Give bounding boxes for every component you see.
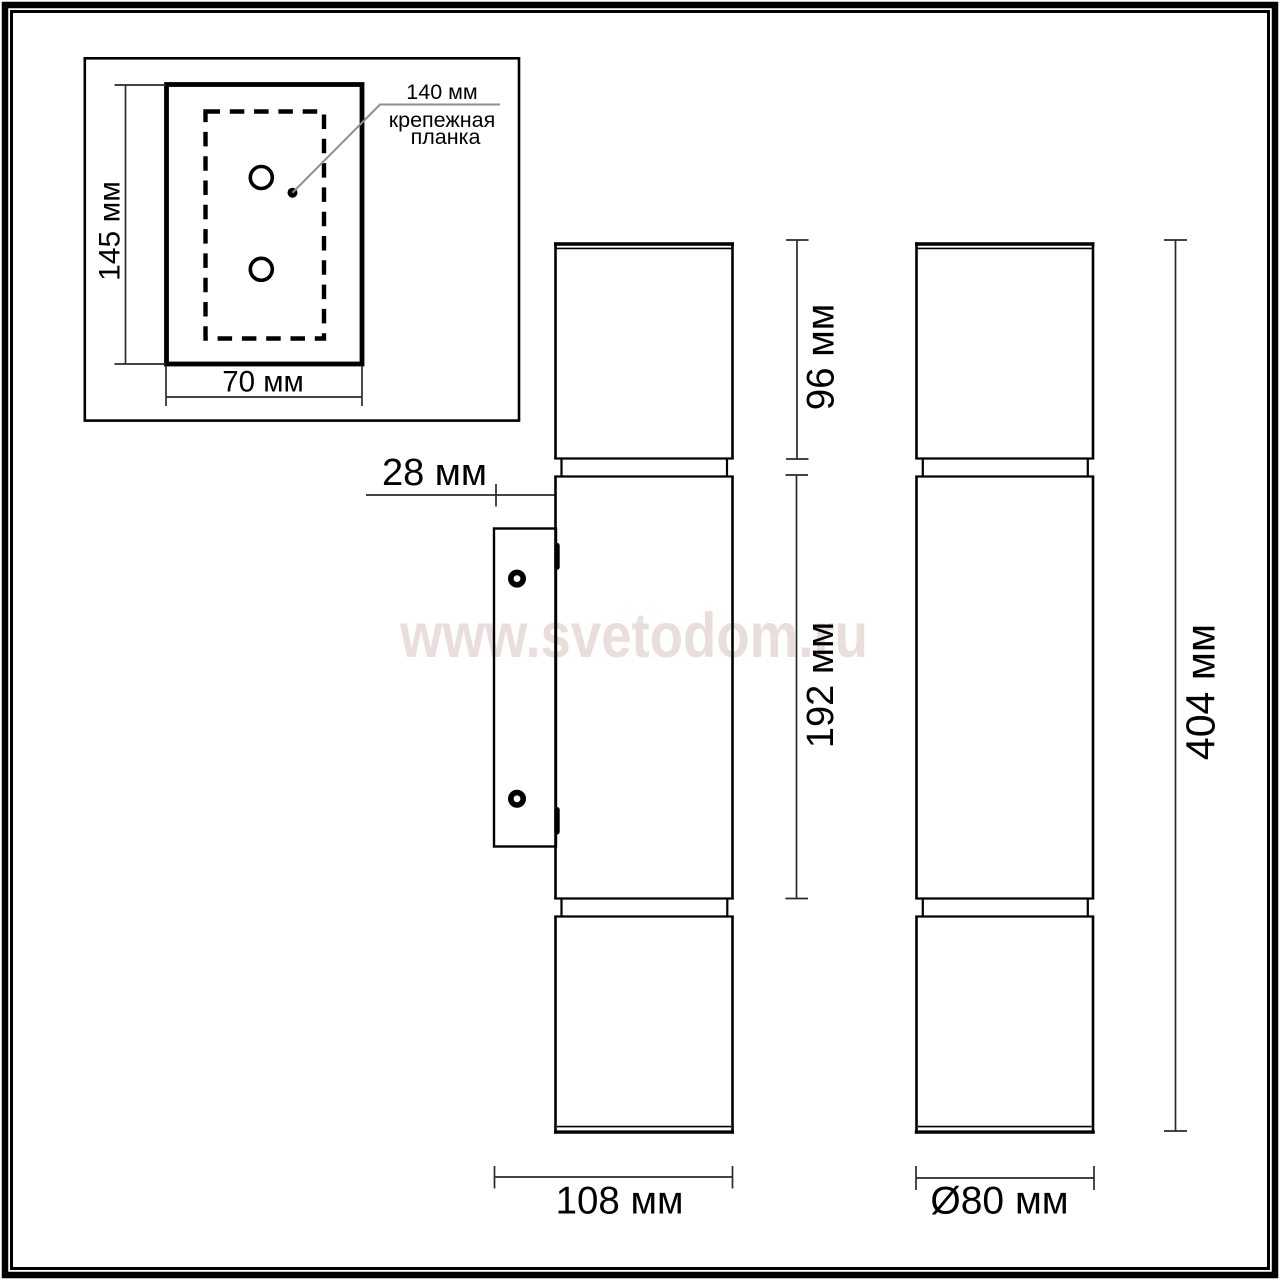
svg-text:140 мм: 140 мм [406, 80, 477, 104]
svg-text:192 мм: 192 мм [800, 622, 842, 748]
svg-text:108 мм: 108 мм [556, 1180, 684, 1223]
svg-text:планка: планка [411, 125, 481, 149]
svg-text:Ø80 мм: Ø80 мм [930, 1180, 1068, 1223]
svg-text:www.svetodom.ru: www.svetodom.ru [399, 601, 868, 671]
svg-text:96 мм: 96 мм [800, 304, 843, 410]
svg-text:145 мм: 145 мм [94, 181, 127, 281]
svg-text:404 мм: 404 мм [1178, 624, 1224, 760]
svg-text:70 мм: 70 мм [222, 366, 304, 399]
svg-text:28 мм: 28 мм [382, 452, 487, 494]
